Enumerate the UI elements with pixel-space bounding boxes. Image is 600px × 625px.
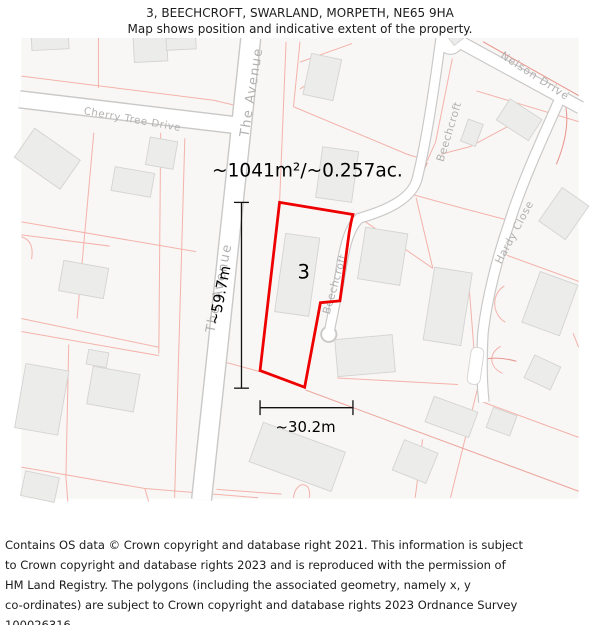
building — [31, 38, 69, 51]
footer-line: co-ordinates) are subject to Crown copyr… — [5, 595, 599, 615]
building — [357, 227, 407, 285]
copyright-footer: Contains OS data © Crown copyright and d… — [5, 535, 599, 625]
footer-line: 100026316. — [5, 615, 599, 625]
width-measure-label: ~30.2m — [276, 418, 336, 436]
building — [133, 38, 168, 63]
building — [166, 38, 196, 50]
building — [86, 349, 109, 367]
map-canvas: The Avenue The Avenue Cherry Tree Drive … — [0, 38, 600, 534]
area-label: ~1041m²/~0.257ac. — [212, 160, 403, 181]
building — [87, 366, 140, 412]
page-subtitle: Map shows position and indicative extent… — [0, 21, 600, 37]
page-title: 3, BEECHCROFT, SWARLAND, MORPETH, NE65 9… — [0, 5, 600, 21]
titlebar: 3, BEECHCROFT, SWARLAND, MORPETH, NE65 9… — [0, 0, 600, 37]
footer-line: Contains OS data © Crown copyright and d… — [5, 535, 599, 555]
footer-line: HM Land Registry. The polygons (includin… — [5, 575, 599, 595]
building — [145, 137, 177, 169]
building — [335, 335, 396, 377]
plot-number-label: 3 — [298, 261, 310, 284]
footer-line: to Crown copyright and database rights 2… — [5, 555, 599, 575]
property-map-page: 3, BEECHCROFT, SWARLAND, MORPETH, NE65 9… — [0, 0, 600, 625]
